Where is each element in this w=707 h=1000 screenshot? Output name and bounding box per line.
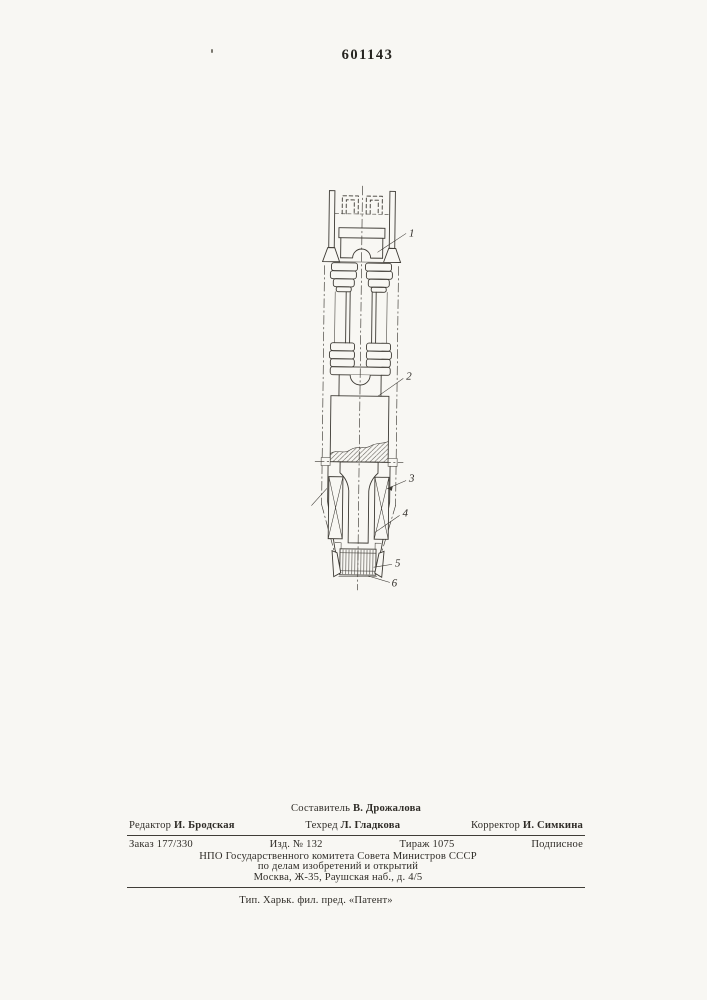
patent-figure: 1 2 3 4 5 6 xyxy=(290,180,440,600)
corrector-role: Корректор xyxy=(471,820,520,831)
staff-line: Редактор И. Бродская Техред Л. Гладкова … xyxy=(127,820,585,832)
figure-callout: 5 xyxy=(395,557,401,569)
compiler-name: В. Дрожалова xyxy=(353,803,421,814)
printer-line: Тип. Харьк. фил. пред. «Патент» xyxy=(87,895,545,907)
organization-block: НПО Государственного комитета Совета Мин… xyxy=(109,852,567,884)
imprint-rule-top xyxy=(127,835,585,836)
patent-page: 601143 xyxy=(0,0,707,1000)
corrector-cell: Корректор И. Симкина xyxy=(471,820,583,832)
subscription-note: Подписное xyxy=(531,839,583,851)
figure-callout: 6 xyxy=(392,577,398,589)
order-line: Заказ 177/330 Изд. № 132 Тираж 1075 Подп… xyxy=(127,839,585,851)
editor-role: Редактор xyxy=(129,820,171,831)
contact-prong-right xyxy=(366,196,382,214)
order-number: Заказ 177/330 xyxy=(129,839,193,851)
print-run: Тираж 1075 xyxy=(399,839,454,851)
compiler-role: Составитель xyxy=(291,803,350,814)
editor-name: И. Бродская xyxy=(174,820,235,831)
org-line-1: НПО Государственного комитета Совета Мин… xyxy=(109,852,567,863)
edition-number: Изд. № 132 xyxy=(270,839,323,851)
editor-cell: Редактор И. Бродская xyxy=(129,820,235,832)
cap-wall-left xyxy=(329,191,335,248)
figure-callout: 4 xyxy=(402,508,408,520)
patent-number: 601143 xyxy=(14,47,707,64)
figure-callout: 2 xyxy=(406,371,412,383)
imprint-rule-bottom xyxy=(127,887,585,888)
techred-name: Л. Гладкова xyxy=(341,820,401,831)
compiler-line: Составитель В. Дрожалова xyxy=(127,800,585,815)
figure-callout: 3 xyxy=(408,473,415,485)
center-axis xyxy=(358,186,363,590)
figure-callout: 1 xyxy=(409,228,415,240)
scan-speck xyxy=(211,49,213,53)
cap-wall-right xyxy=(389,191,395,248)
contact-prong-left xyxy=(342,196,358,214)
org-line-3: Москва, Ж-35, Раушская наб., д. 4/5 xyxy=(109,873,567,884)
techred-cell: Техред Л. Гладкова xyxy=(305,820,400,832)
imprint-block: Составитель В. Дрожалова Редактор И. Бро… xyxy=(127,800,585,907)
techred-role: Техред xyxy=(305,820,337,831)
corrector-name: И. Симкина xyxy=(523,820,583,831)
